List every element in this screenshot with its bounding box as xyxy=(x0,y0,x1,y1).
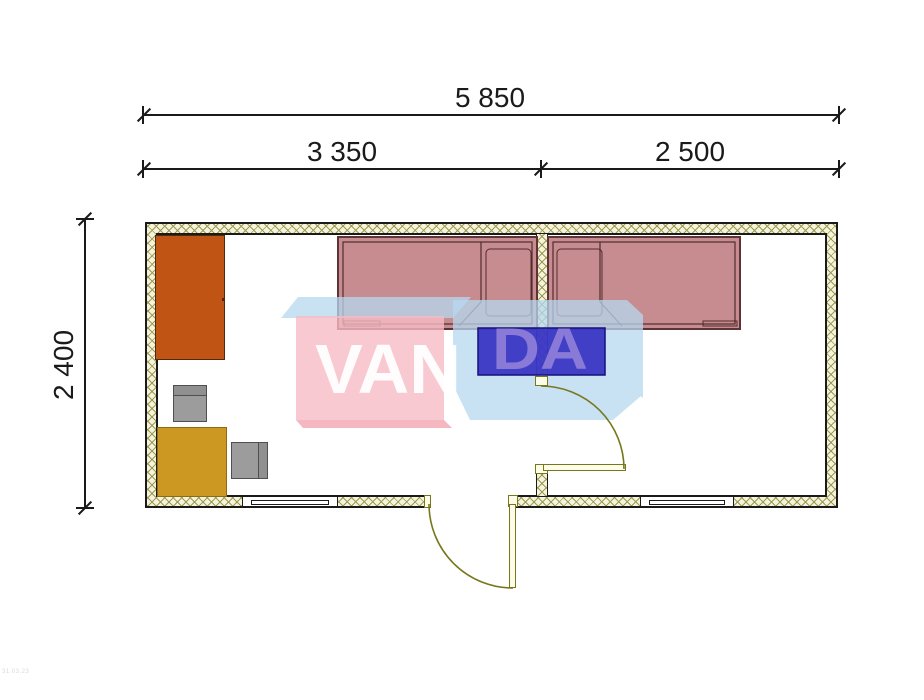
wardrobe xyxy=(155,235,225,360)
dimension-depth-line xyxy=(84,219,86,509)
entry-door-jamb xyxy=(424,495,431,508)
interior-door-leaf xyxy=(543,464,626,471)
entry-door-leaf xyxy=(509,504,516,588)
window-glazing xyxy=(649,500,725,505)
desk xyxy=(173,385,207,422)
dimension-right-room-label: 2 500 xyxy=(630,136,750,168)
wardrobe-handle xyxy=(222,298,225,301)
window-glazing xyxy=(251,500,329,505)
dimension-rooms-line xyxy=(143,168,839,170)
window-left xyxy=(242,495,338,508)
dimension-total-line xyxy=(143,114,839,116)
desk-backrest xyxy=(174,386,206,396)
entry-door-opening xyxy=(429,494,516,511)
chair xyxy=(231,442,268,479)
dimension-depth-label: 2 400 xyxy=(44,315,84,415)
dimension-total-label: 5 850 xyxy=(430,82,550,114)
partition-end-cap xyxy=(535,376,548,386)
chair-backrest xyxy=(258,443,267,478)
corner-note: 31.03.23 xyxy=(2,669,29,675)
window-right xyxy=(640,495,734,508)
partition-wall xyxy=(536,233,548,386)
table xyxy=(157,427,227,497)
entry-door-swing-arc xyxy=(429,504,513,588)
floor-plan-drawing: 5 850 3 350 2 500 2 400 xyxy=(0,0,924,700)
dimension-left-room-label: 3 350 xyxy=(282,136,402,168)
